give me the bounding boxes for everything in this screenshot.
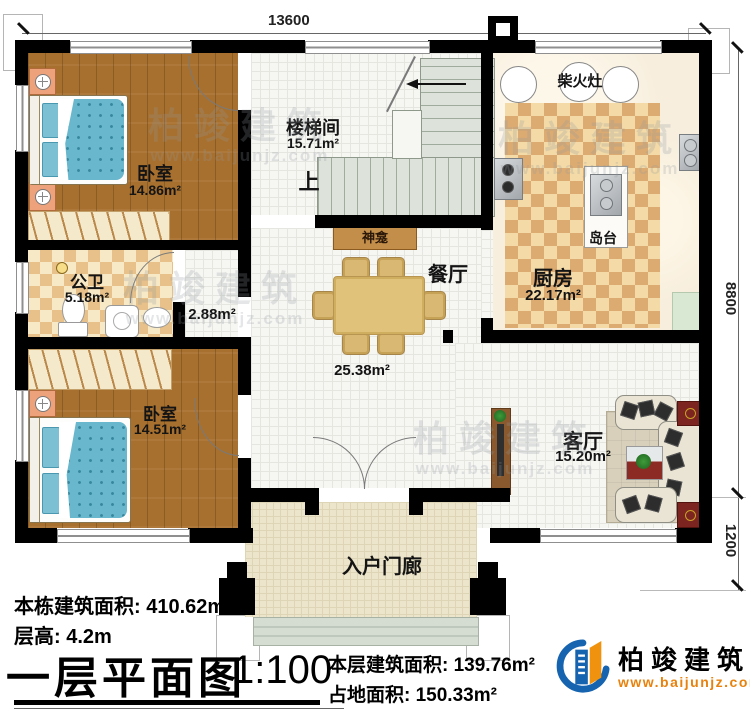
window (70, 41, 192, 54)
wardrobe (28, 211, 170, 242)
gas-stove (494, 158, 523, 200)
right-dimension-line (738, 50, 739, 590)
brand-logo-icon (556, 638, 610, 701)
nightstand (29, 390, 56, 417)
stair-landing-notch (392, 110, 422, 159)
brand-logo: 柏竣建筑 www.baijunjz.com (556, 638, 750, 701)
washing-machine (105, 305, 139, 338)
right-dimension-lower-label: 1200 (722, 524, 739, 557)
wall (250, 488, 313, 502)
floor-plan-canvas: 13600 8800 1200 (0, 0, 750, 716)
bed (29, 417, 131, 523)
wall (699, 40, 712, 543)
top-dimension-label: 13600 (268, 12, 310, 29)
headboard (30, 418, 40, 522)
dining-area: 25.38m² (322, 362, 402, 379)
wall (490, 528, 540, 543)
tv (497, 424, 504, 476)
right-dimension-upper-label: 8800 (722, 282, 739, 315)
wall (488, 330, 712, 343)
title-underline-thin (14, 708, 344, 709)
wall (15, 40, 28, 85)
footprint-stat: 占地面积: 150.33m² (328, 680, 497, 707)
dining-chair (377, 332, 405, 355)
stair-flight-horizontal (317, 157, 495, 217)
stair-direction-line (418, 83, 466, 85)
sofa (615, 487, 677, 523)
bathroom-sink (143, 307, 171, 328)
kitchen-area: 22.17m² (503, 287, 603, 304)
wood-stove-burner (500, 66, 537, 103)
wall (15, 312, 28, 390)
brand-name: 柏竣建筑 (618, 647, 750, 673)
total-area-label: 本栋建筑面积: (14, 596, 141, 618)
hallway-area: 2.88m² (180, 306, 244, 323)
window (57, 529, 190, 543)
wall (15, 240, 251, 250)
window (535, 41, 662, 54)
nightstand (29, 68, 56, 95)
pillow (42, 427, 60, 468)
pillow (42, 473, 60, 514)
floor-area-value: 139.76m² (454, 655, 535, 676)
counter-mat (672, 292, 701, 332)
wall (315, 215, 493, 228)
wardrobe (28, 349, 172, 390)
island-sink (590, 174, 622, 216)
dining-label: 餐厅 (413, 258, 483, 287)
brand-website: www.baijunjz.com (618, 673, 750, 691)
plant (636, 454, 651, 469)
bedroom2-area: 14.51m² (117, 421, 203, 437)
top-dimension-line (22, 33, 706, 34)
kitchen-sink (679, 134, 701, 171)
total-area-value: 410.62m² (146, 596, 232, 618)
wood-stove-label: 柴火灶 (540, 70, 620, 91)
chimney-flue (496, 23, 510, 36)
island-label: 岛台 (575, 228, 631, 248)
porch-steps (253, 617, 479, 646)
stairwell-area: 15.71m² (263, 135, 363, 151)
wall (443, 330, 453, 343)
hallway-floor (185, 250, 238, 337)
pillow (42, 103, 60, 138)
window (16, 390, 29, 462)
door-jamb (409, 488, 423, 515)
pillow (42, 142, 60, 177)
toilet-tank (58, 322, 88, 337)
dining-chair (342, 332, 370, 355)
wall (675, 528, 712, 543)
extension-line (640, 590, 746, 591)
dining-chair (422, 291, 446, 320)
window (540, 529, 677, 543)
wall (15, 528, 57, 543)
wall (481, 40, 493, 230)
plant (494, 410, 506, 422)
footprint-label: 占地面积: (328, 685, 410, 706)
nightstand (29, 182, 56, 211)
headboard (30, 96, 40, 184)
wall (238, 110, 251, 240)
wall (415, 488, 510, 502)
total-area-stat: 本栋建筑面积: 410.62m² (14, 590, 232, 619)
shrine-label: 神龛 (362, 227, 388, 246)
door-jamb (305, 488, 319, 515)
stairs-up-label: 上 (294, 166, 324, 196)
floor-area-label: 本层建筑面积: (328, 655, 448, 676)
wall (190, 40, 305, 53)
floor-area-stat: 本层建筑面积: 139.76m² (328, 650, 535, 677)
plan-title: 一层平面图 (6, 642, 246, 706)
wall (15, 337, 251, 349)
footprint-value: 150.33m² (416, 685, 497, 706)
stair-direction-arrow (406, 79, 418, 89)
bathroom-area: 5.18m² (47, 289, 127, 305)
porch-label: 入户门廊 (308, 550, 456, 579)
porch-pillar (470, 578, 506, 615)
window (16, 262, 29, 314)
bedroom1-area: 14.86m² (110, 182, 200, 198)
plan-scale: 1:100 (232, 648, 332, 693)
window (305, 41, 430, 54)
wall (238, 250, 251, 297)
title-underline-thick (14, 700, 320, 705)
living-area: 15.20m² (543, 448, 623, 465)
wall (238, 337, 251, 395)
window (16, 85, 29, 152)
dining-table (333, 276, 425, 335)
